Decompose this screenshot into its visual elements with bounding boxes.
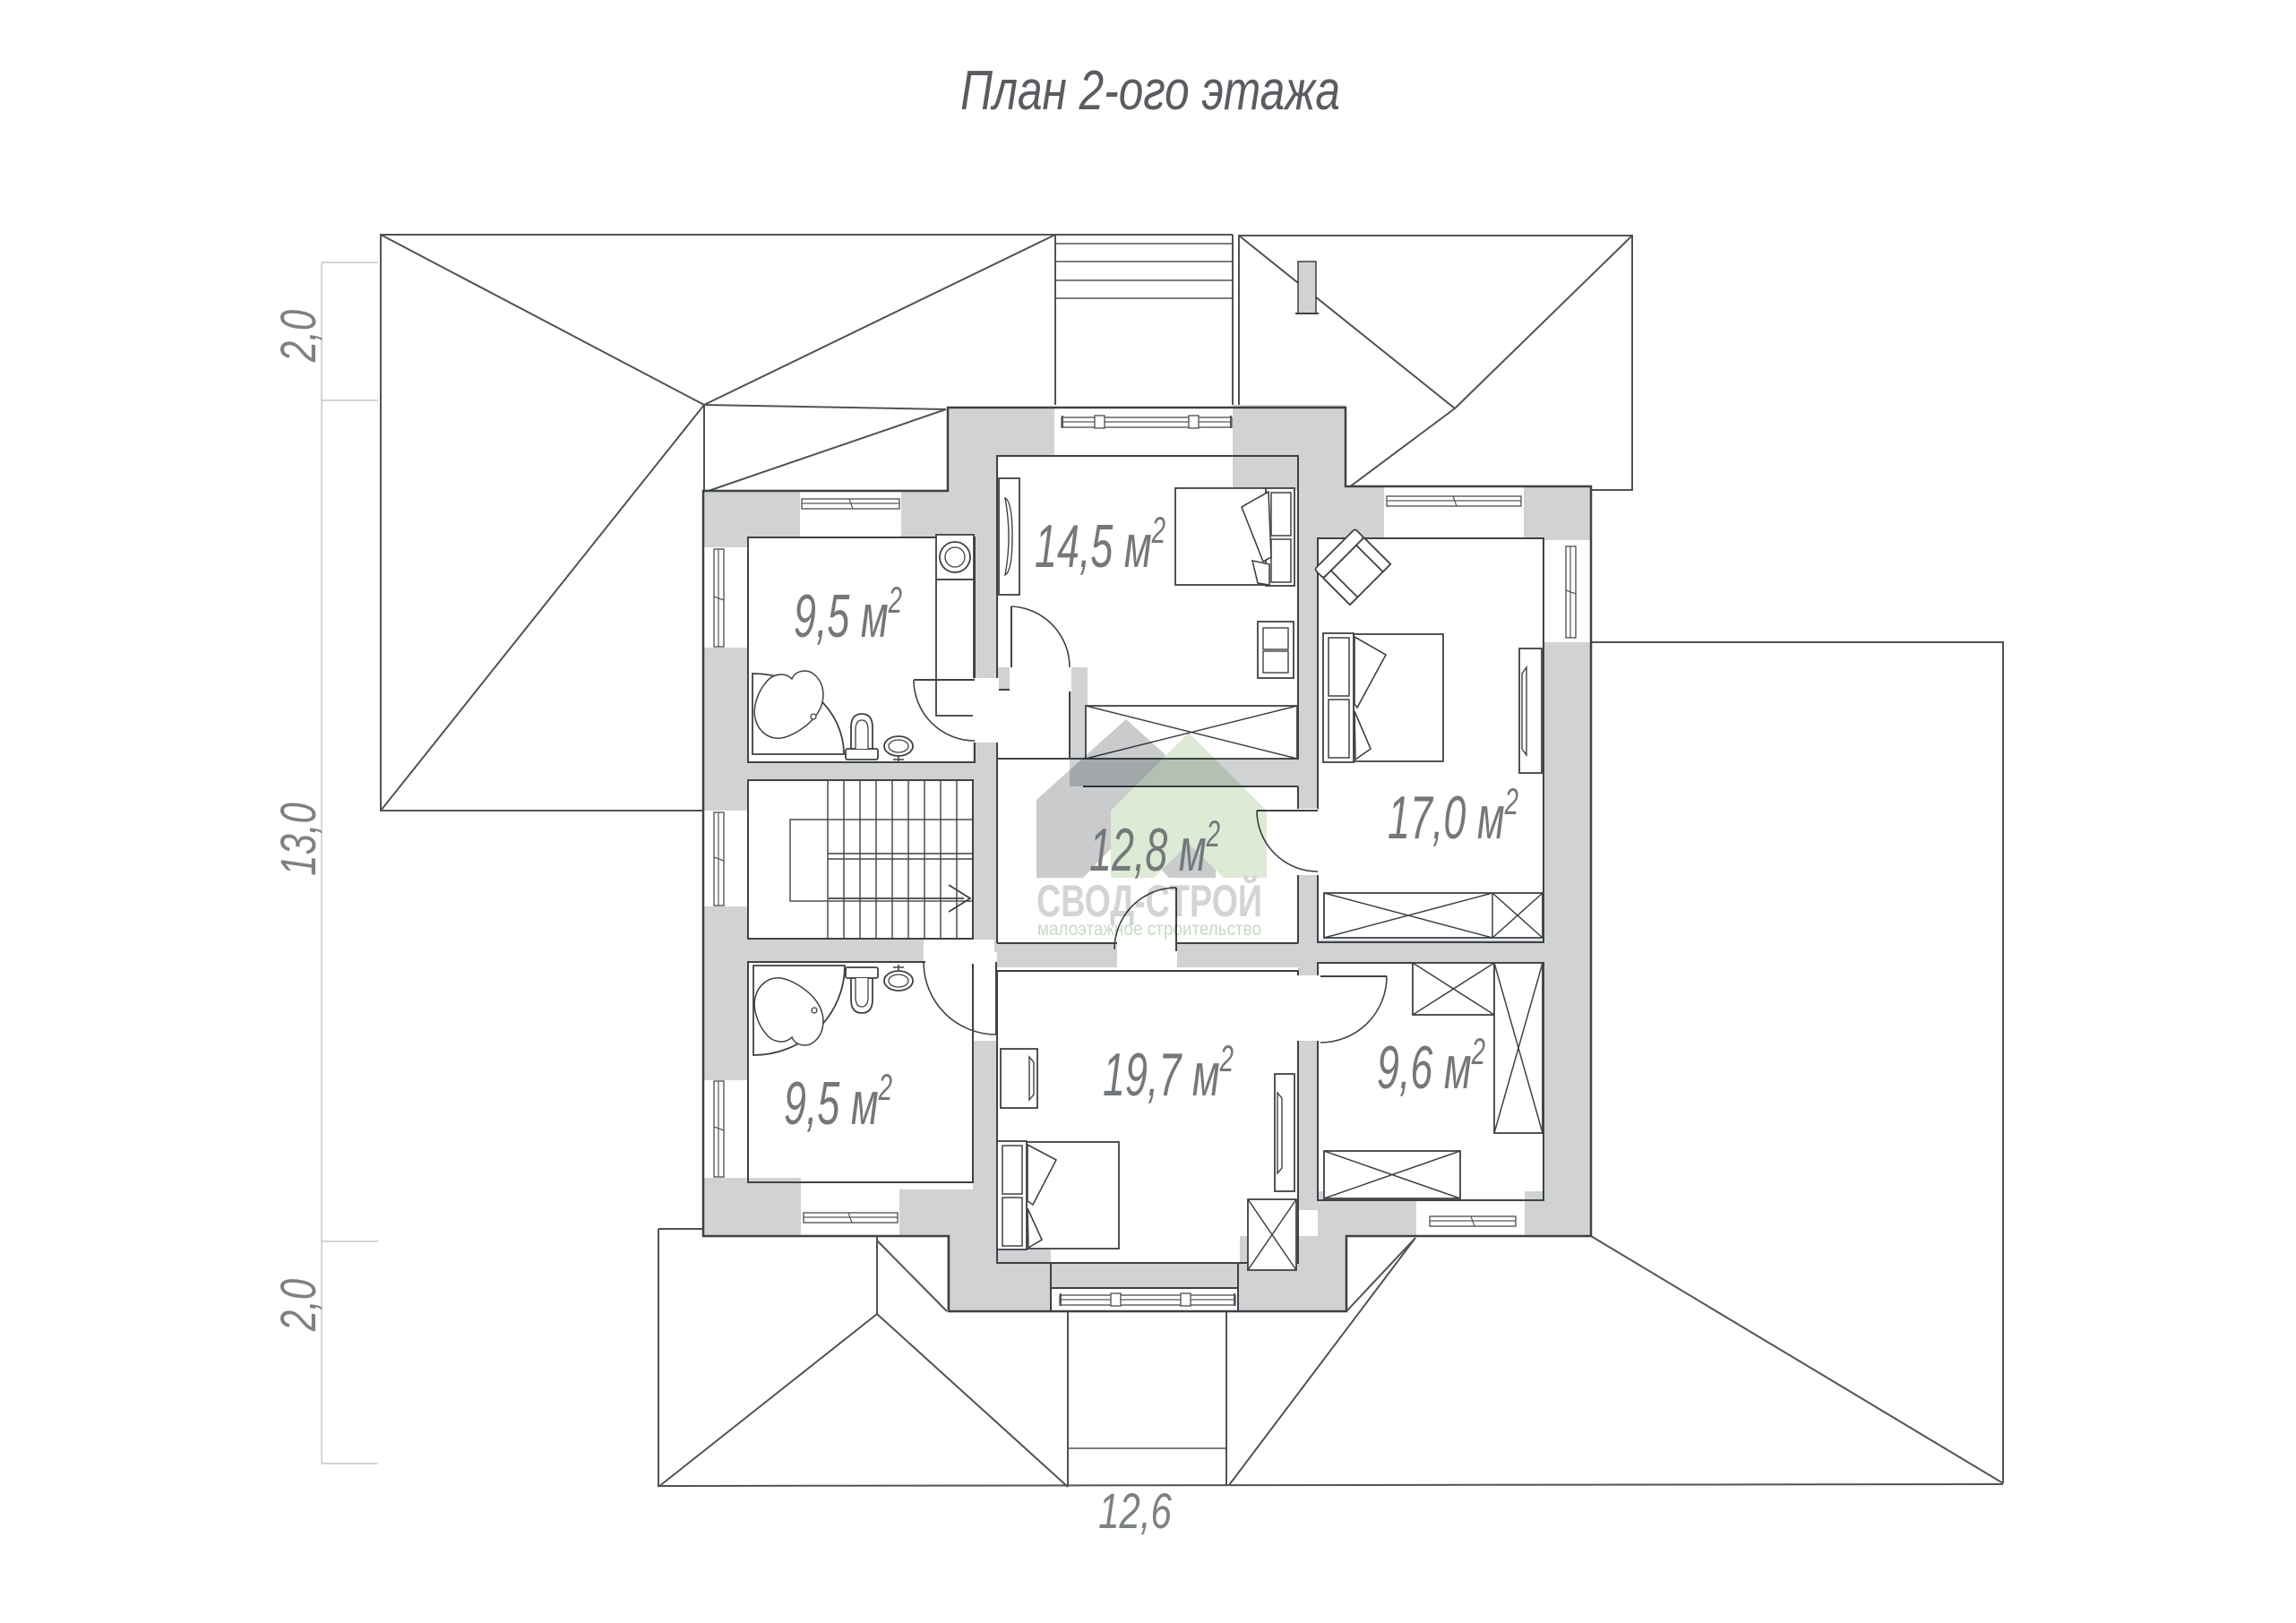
svg-text:12,6: 12,6 xyxy=(1098,1483,1172,1539)
svg-text:2,0: 2,0 xyxy=(271,1278,326,1332)
svg-text:9,5 м2: 9,5 м2 xyxy=(794,579,902,650)
svg-text:14,5 м2: 14,5 м2 xyxy=(1035,509,1165,580)
svg-text:12,8 м2: 12,8 м2 xyxy=(1089,812,1220,884)
svg-text:2,0: 2,0 xyxy=(271,309,326,363)
svg-text:9,5 м2: 9,5 м2 xyxy=(784,1066,892,1138)
svg-text:малоэтажное строительство: малоэтажное строительство xyxy=(1037,919,1261,940)
svg-text:9,6 м2: 9,6 м2 xyxy=(1377,1030,1485,1102)
svg-text:13,0: 13,0 xyxy=(271,803,326,876)
svg-text:План 2-ого этажа: План 2-ого этажа xyxy=(960,59,1340,122)
svg-text:17,0 м2: 17,0 м2 xyxy=(1388,780,1518,852)
svg-text:19,7 м2: 19,7 м2 xyxy=(1103,1037,1234,1109)
